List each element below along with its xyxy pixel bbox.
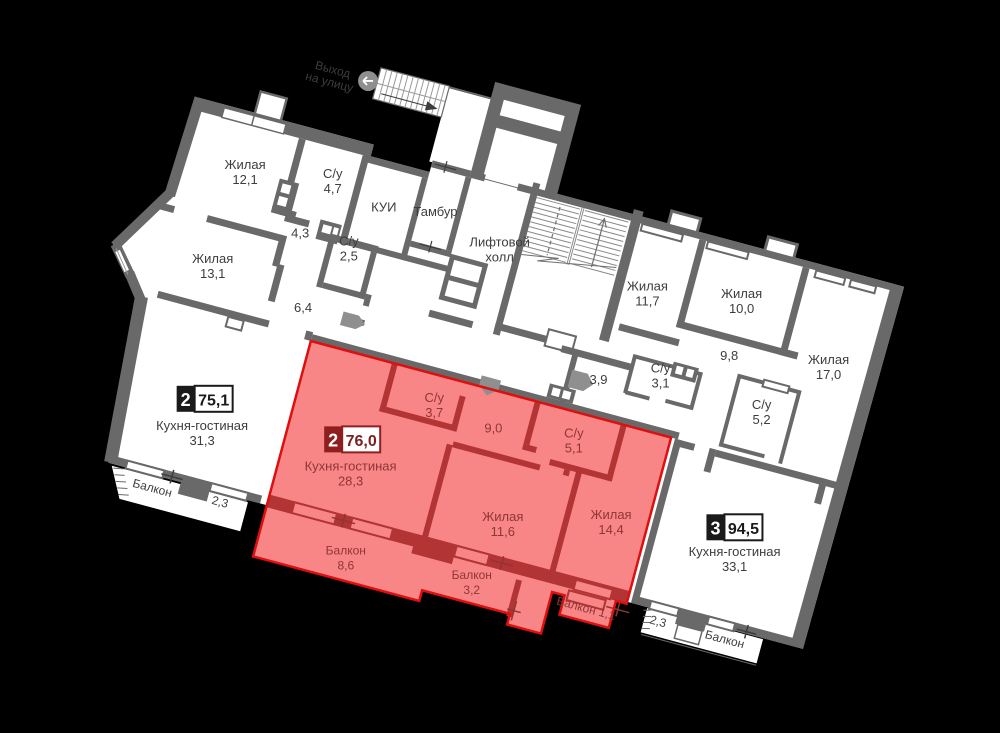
svg-text:Кухня-гостиная: Кухня-гостиная	[156, 418, 248, 433]
svg-text:Жилая: Жилая	[627, 278, 668, 293]
svg-text:3,7: 3,7	[425, 405, 443, 420]
svg-text:76,0: 76,0	[346, 433, 377, 450]
svg-text:Тамбур: Тамбур	[413, 204, 457, 219]
svg-text:2: 2	[328, 430, 338, 450]
svg-text:С/у: С/у	[752, 397, 772, 412]
svg-text:КУИ: КУИ	[371, 199, 396, 214]
svg-text:5,2: 5,2	[753, 412, 771, 427]
svg-text:4,3: 4,3	[291, 226, 309, 241]
svg-text:Балкон: Балкон	[326, 543, 366, 557]
svg-text:10,0: 10,0	[729, 301, 754, 316]
svg-text:31,3: 31,3	[189, 433, 214, 448]
svg-text:3,1: 3,1	[652, 376, 670, 391]
svg-text:С/у: С/у	[424, 390, 444, 405]
svg-text:Кухня-гостиная: Кухня-гостиная	[305, 459, 397, 474]
svg-text:С/у: С/у	[564, 425, 584, 440]
svg-text:2: 2	[181, 390, 191, 410]
svg-text:Жилая: Жилая	[808, 352, 849, 367]
svg-text:3,2: 3,2	[463, 583, 480, 597]
svg-text:11,6: 11,6	[491, 524, 515, 539]
svg-text:9,0: 9,0	[484, 420, 502, 435]
svg-text:12,1: 12,1	[232, 172, 257, 187]
svg-text:13,1: 13,1	[200, 266, 225, 281]
svg-text:Жилая: Жилая	[192, 251, 233, 266]
svg-text:С/у: С/у	[339, 234, 359, 249]
svg-text:3: 3	[710, 518, 720, 538]
svg-text:Балкон: Балкон	[452, 568, 492, 582]
svg-text:С/у: С/у	[323, 166, 343, 181]
svg-text:Жилая: Жилая	[482, 509, 523, 524]
svg-text:4,7: 4,7	[324, 181, 342, 196]
svg-text:Жилая: Жилая	[721, 286, 762, 301]
svg-text:С/у: С/у	[651, 361, 671, 376]
svg-text:6,4: 6,4	[294, 300, 312, 315]
svg-text:17,0: 17,0	[816, 367, 841, 382]
svg-text:8,6: 8,6	[337, 558, 354, 572]
svg-text:75,1: 75,1	[198, 392, 229, 409]
svg-text:3,9: 3,9	[589, 372, 607, 387]
svg-text:Жилая: Жилая	[225, 157, 266, 172]
svg-text:холл: холл	[485, 250, 513, 265]
svg-text:Лифтовой: Лифтовой	[469, 235, 530, 250]
svg-text:94,5: 94,5	[728, 521, 759, 538]
svg-text:Кухня-гостиная: Кухня-гостиная	[689, 544, 781, 559]
svg-text:9,8: 9,8	[720, 348, 738, 363]
svg-text:33,1: 33,1	[722, 559, 747, 574]
svg-text:Жилая: Жилая	[590, 507, 631, 522]
svg-text:11,7: 11,7	[635, 293, 659, 308]
svg-text:2,5: 2,5	[340, 249, 358, 264]
svg-text:28,3: 28,3	[338, 474, 363, 489]
svg-text:5,1: 5,1	[565, 440, 583, 455]
svg-text:14,4: 14,4	[598, 522, 623, 537]
